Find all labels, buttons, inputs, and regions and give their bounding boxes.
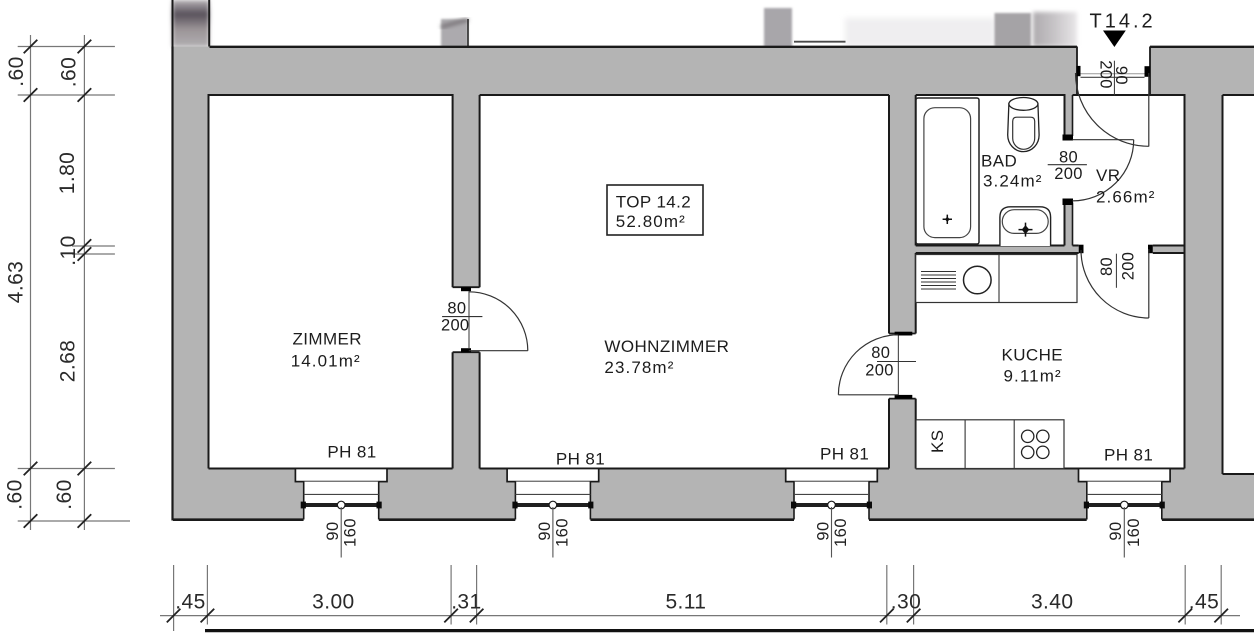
svg-text:23.78m²: 23.78m²	[604, 358, 674, 377]
svg-text:2.68: 2.68	[57, 340, 80, 382]
svg-text:.45: .45	[1189, 591, 1219, 614]
svg-text:.60: .60	[53, 479, 76, 509]
svg-text:80: 80	[447, 300, 466, 318]
svg-text:14.01m²: 14.01m²	[291, 351, 361, 370]
svg-text:9.11m²: 9.11m²	[1004, 367, 1062, 386]
svg-text:BAD: BAD	[981, 152, 1017, 171]
svg-text:T14.2: T14.2	[1090, 10, 1156, 32]
svg-text:1.80: 1.80	[56, 152, 79, 194]
svg-text:80: 80	[1059, 148, 1078, 166]
svg-text:.10: .10	[57, 235, 80, 265]
svg-text:TOP 14.2: TOP 14.2	[616, 192, 691, 211]
svg-text:PH 81: PH 81	[556, 450, 605, 469]
svg-text:.31: .31	[451, 591, 481, 614]
svg-text:200: 200	[1120, 252, 1138, 280]
svg-text:5.11: 5.11	[665, 591, 706, 614]
svg-text:200: 200	[1096, 60, 1114, 88]
svg-text:KUCHE: KUCHE	[1002, 346, 1064, 365]
svg-text:PH 81: PH 81	[1104, 446, 1153, 465]
svg-text:ZIMMER: ZIMMER	[293, 330, 362, 349]
svg-text:PH 81: PH 81	[820, 445, 869, 464]
svg-text:4.63: 4.63	[5, 261, 28, 303]
svg-text:3.00: 3.00	[312, 591, 354, 614]
svg-text:3.40: 3.40	[1031, 591, 1073, 614]
svg-text:.60: .60	[5, 56, 28, 86]
svg-text:VR: VR	[1096, 166, 1120, 185]
svg-text:.60: .60	[58, 57, 81, 87]
svg-text:80: 80	[1098, 257, 1116, 276]
svg-text:200: 200	[1054, 165, 1082, 183]
svg-text:WOHNZIMMER: WOHNZIMMER	[604, 337, 729, 356]
svg-text:3.24m²: 3.24m²	[983, 172, 1043, 191]
svg-text:.60: .60	[3, 479, 26, 509]
svg-text:PH 81: PH 81	[327, 443, 376, 462]
svg-text:52.80m²: 52.80m²	[616, 212, 686, 231]
svg-text:2.66m²: 2.66m²	[1096, 188, 1156, 207]
svg-text:80: 80	[871, 344, 890, 362]
svg-text:200: 200	[441, 317, 469, 335]
svg-text:KS: KS	[928, 429, 947, 452]
svg-text:200: 200	[865, 362, 893, 380]
svg-text:.30: .30	[891, 591, 921, 614]
svg-text:.45: .45	[175, 591, 205, 614]
